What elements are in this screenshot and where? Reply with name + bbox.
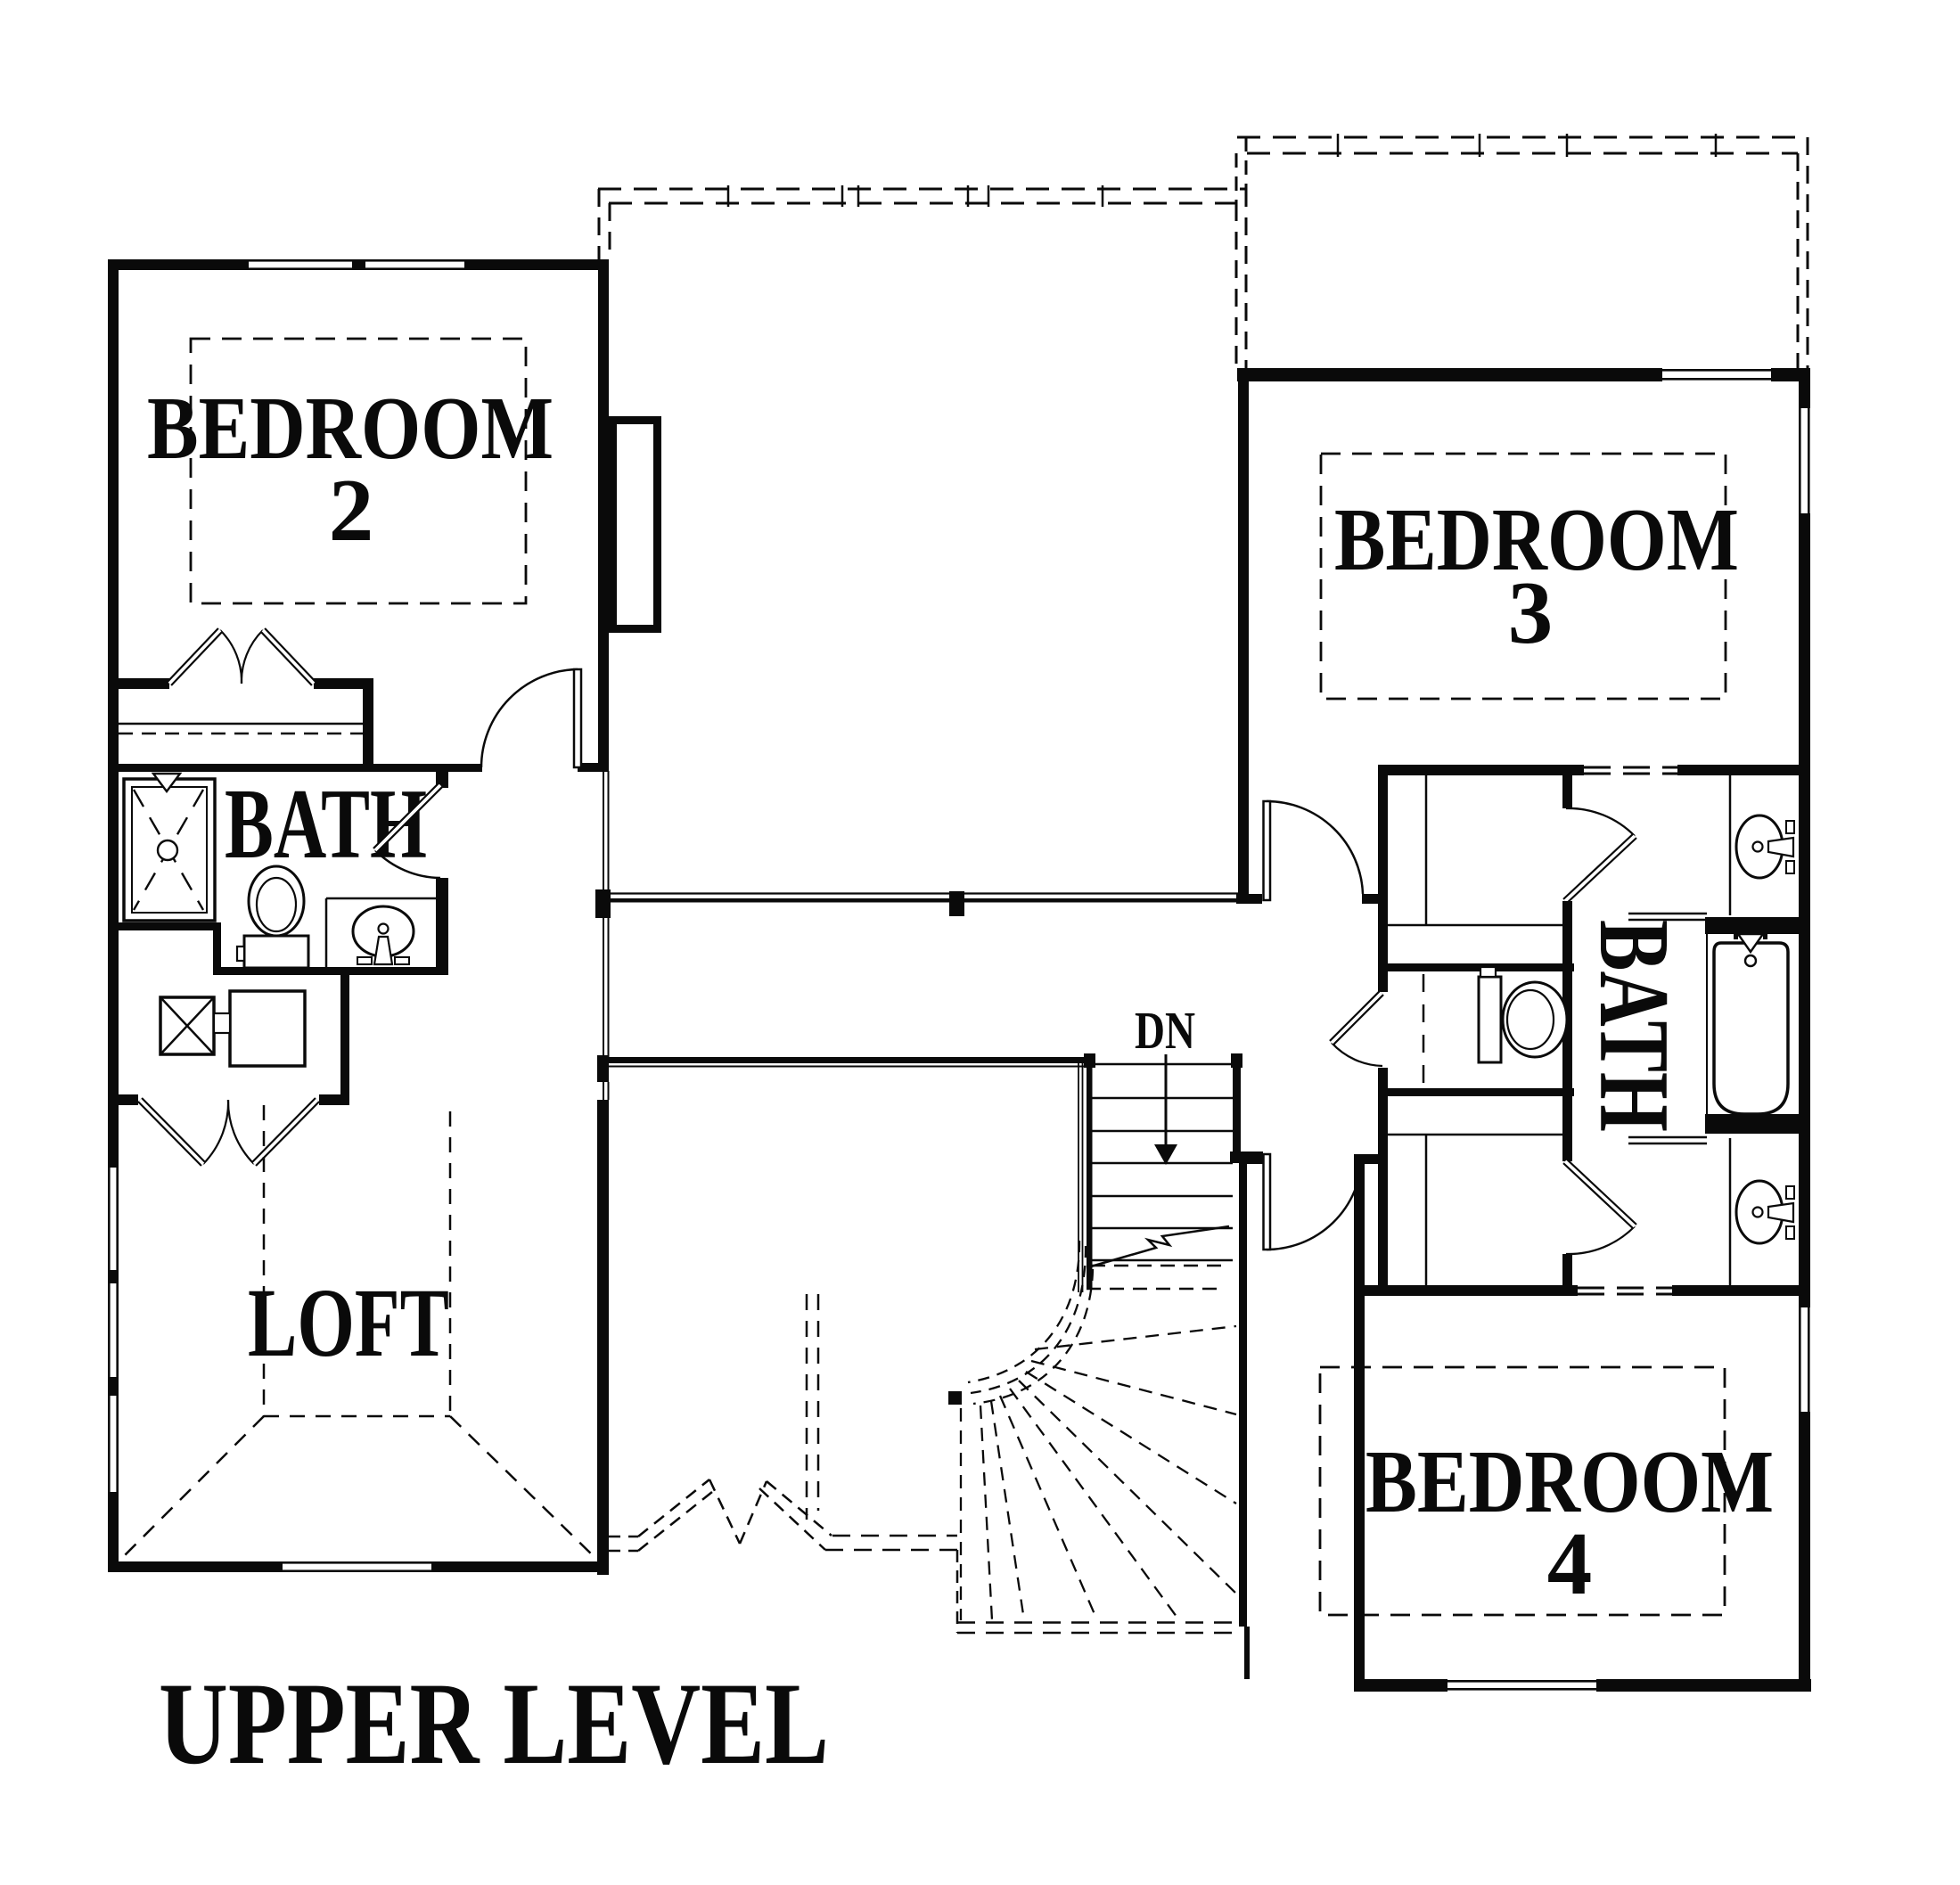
svg-text:3: 3 (1508, 562, 1554, 662)
svg-text:BATH: BATH (1579, 920, 1689, 1132)
svg-text:LOFT: LOFT (248, 1268, 449, 1377)
svg-text:UPPER LEVEL: UPPER LEVEL (159, 1658, 829, 1789)
svg-text:4: 4 (1547, 1513, 1593, 1613)
svg-text:2: 2 (329, 460, 374, 560)
svg-text:DN: DN (1135, 1001, 1195, 1060)
